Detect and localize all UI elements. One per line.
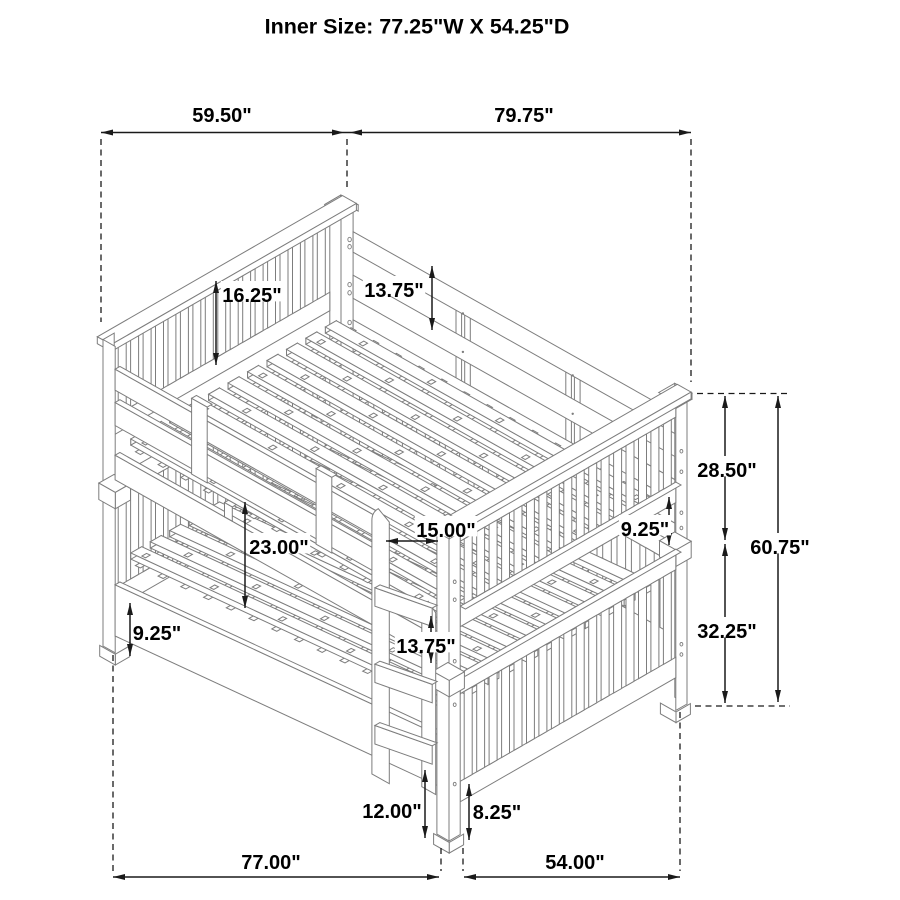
svg-text:60.75": 60.75" [750, 537, 810, 559]
svg-text:32.25": 32.25" [697, 621, 757, 643]
svg-text:23.00": 23.00" [249, 537, 309, 559]
svg-text:9.25": 9.25" [621, 519, 669, 541]
svg-text:12.00": 12.00" [362, 801, 422, 823]
svg-text:15.00": 15.00" [416, 520, 476, 542]
svg-text:Inner Size: 77.25"W X 54.25"D: Inner Size: 77.25"W X 54.25"D [265, 15, 570, 39]
svg-text:59.50": 59.50" [192, 105, 252, 127]
svg-text:79.75": 79.75" [494, 105, 554, 127]
svg-text:13.75": 13.75" [364, 280, 424, 302]
svg-text:54.00": 54.00" [545, 852, 605, 874]
svg-text:16.25": 16.25" [222, 285, 282, 307]
svg-text:8.25": 8.25" [473, 802, 521, 824]
svg-text:9.25": 9.25" [133, 623, 181, 645]
svg-text:13.75": 13.75" [396, 636, 456, 658]
svg-text:28.50": 28.50" [697, 460, 757, 482]
svg-text:77.00": 77.00" [241, 852, 301, 874]
